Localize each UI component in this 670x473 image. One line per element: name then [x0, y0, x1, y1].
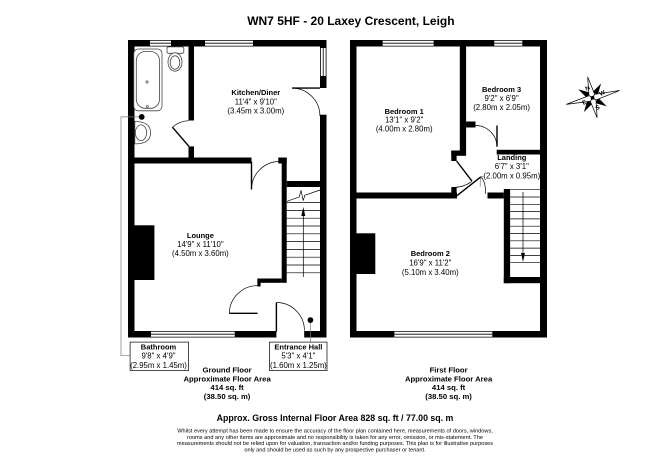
svg-text:9'2" x 6'9": 9'2" x 6'9" [485, 94, 519, 103]
svg-text:Bedroom 1: Bedroom 1 [385, 107, 424, 116]
svg-text:Entrance Hall: Entrance Hall [274, 342, 322, 351]
svg-text:9'8" x 4'9": 9'8" x 4'9" [141, 352, 175, 361]
svg-text:First Floor: First Floor [430, 366, 468, 375]
svg-text:(3.45m x 3.00m): (3.45m x 3.00m) [227, 107, 284, 116]
svg-text:(2.00m x 0.95m): (2.00m x 0.95m) [483, 171, 540, 180]
svg-text:6'7" x 3'1": 6'7" x 3'1" [495, 162, 529, 171]
svg-text:Kitchen/Diner: Kitchen/Diner [231, 88, 280, 97]
svg-text:(2.95m x 1.45m): (2.95m x 1.45m) [130, 361, 187, 370]
svg-text:Landing: Landing [497, 153, 527, 162]
svg-text:Whilst every attempt has been: Whilst every attempt has been made to en… [177, 429, 493, 435]
svg-text:(5.10m x 3.40m): (5.10m x 3.40m) [402, 268, 459, 277]
svg-text:13'1" x 9'2": 13'1" x 9'2" [385, 116, 424, 125]
svg-text:16'9" x 11'2": 16'9" x 11'2" [409, 259, 451, 268]
svg-text:(38.50 sq. m): (38.50 sq. m) [425, 392, 472, 401]
svg-text:Lounge: Lounge [187, 231, 214, 240]
svg-text:Bedroom 2: Bedroom 2 [411, 249, 450, 258]
svg-text:14'9" x 11'10": 14'9" x 11'10" [177, 240, 224, 249]
svg-text:(1.60m x 1.25m): (1.60m x 1.25m) [270, 361, 327, 370]
svg-text:Approximate Floor Area: Approximate Floor Area [405, 374, 493, 383]
svg-text:(2.80m x 2.05m): (2.80m x 2.05m) [473, 103, 530, 112]
svg-text:WN7 5HF - 20 Laxey Crescent, L: WN7 5HF - 20 Laxey Crescent, Leigh [247, 14, 454, 28]
svg-text:Ground Floor: Ground Floor [203, 366, 252, 375]
svg-text:(4.00m x 2.80m): (4.00m x 2.80m) [376, 125, 433, 134]
svg-text:Approx. Gross Internal Floor A: Approx. Gross Internal Floor Area 828 sq… [217, 413, 454, 423]
svg-text:Bedroom 3: Bedroom 3 [482, 85, 521, 94]
svg-text:5'3" x 4'1": 5'3" x 4'1" [281, 352, 315, 361]
svg-text:(4.50m x 3.60m): (4.50m x 3.60m) [172, 249, 229, 258]
svg-text:W: W [599, 90, 607, 98]
svg-text:414 sq. ft: 414 sq. ft [432, 383, 466, 392]
svg-text:Approximate Floor Area: Approximate Floor Area [183, 374, 271, 383]
svg-text:11'4" x 9'10": 11'4" x 9'10" [235, 97, 277, 106]
svg-text:414 sq. ft: 414 sq. ft [210, 383, 244, 392]
svg-text:only and should be used as suc: only and should be used as such by any p… [244, 448, 426, 454]
svg-text:rooms and any other items are: rooms and any other items are approximat… [187, 435, 483, 441]
svg-text:(38.50 sq. m): (38.50 sq. m) [204, 392, 251, 401]
svg-text:measurements should not be rel: measurements should not be relied upon f… [177, 441, 493, 447]
svg-text:Bathroom: Bathroom [141, 342, 177, 351]
